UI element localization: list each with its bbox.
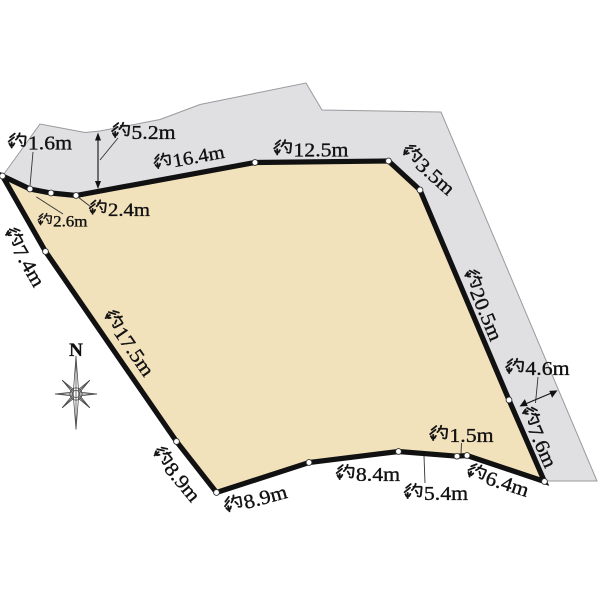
svg-text:5.2m: 5.2m xyxy=(131,122,176,144)
svg-text:1.6m: 1.6m xyxy=(28,133,73,155)
svg-text:2.4m: 2.4m xyxy=(108,200,150,221)
svg-text:4.6m: 4.6m xyxy=(525,358,570,380)
svg-text:2.6m: 2.6m xyxy=(53,213,87,230)
svg-text:5.4m: 5.4m xyxy=(424,483,469,505)
svg-text:N: N xyxy=(69,340,83,361)
svg-text:1.5m: 1.5m xyxy=(449,425,494,447)
svg-text:12.5m: 12.5m xyxy=(293,140,349,162)
svg-text:8.4m: 8.4m xyxy=(356,464,401,486)
